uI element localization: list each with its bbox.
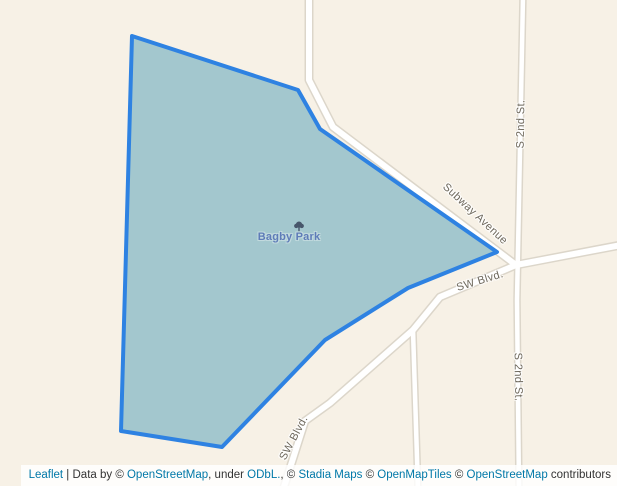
attribution-link-odbl[interactable]: ODbL. (247, 469, 280, 481)
park-overlay (0, 0, 617, 486)
park-polygon[interactable] (121, 36, 497, 447)
attribution-link-leaflet[interactable]: Leaflet (29, 469, 64, 481)
attribution-text: © (452, 469, 467, 481)
attribution-text: © (362, 469, 377, 481)
attribution-text: , © (280, 469, 298, 481)
attribution-bar: Leaflet | Data by © OpenStreetMap, under… (21, 465, 617, 486)
attribution-text: , under (208, 469, 247, 481)
attribution-link-openmaptiles[interactable]: OpenMapTiles (377, 469, 451, 481)
attribution-link-stadia-maps[interactable]: Stadia Maps (298, 469, 362, 481)
attribution-link-openstreetmap-2[interactable]: OpenStreetMap (467, 469, 548, 481)
attribution-text: contributors (548, 469, 611, 481)
map-canvas[interactable]: Subway Avenue S 2nd St. S 2nd St. SW Blv… (0, 0, 617, 486)
attribution-text: | Data by © (63, 469, 127, 481)
attribution-link-openstreetmap[interactable]: OpenStreetMap (127, 469, 208, 481)
